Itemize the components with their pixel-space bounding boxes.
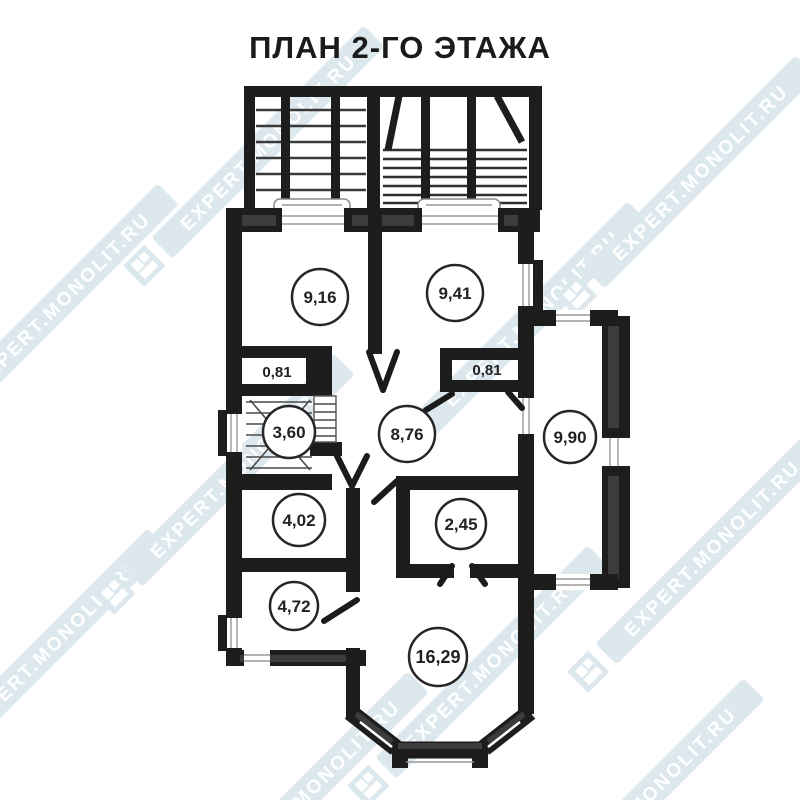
room-area-label: 2,45 <box>444 515 477 534</box>
window-opening <box>422 208 498 232</box>
room-area-label: 8,76 <box>390 425 423 444</box>
room-area-badge-living: 16,29 <box>409 628 467 686</box>
window-opening <box>556 574 590 590</box>
room-area-badge-top-left: 9,16 <box>292 269 348 325</box>
window-opening <box>218 410 242 456</box>
room-area-label: 4,72 <box>277 597 310 616</box>
room-area-label: 16,29 <box>415 647 460 667</box>
room-area-badge-stair: 3,60 <box>263 406 315 458</box>
room-area-label: 9,41 <box>438 284 471 303</box>
window-opening <box>282 208 344 232</box>
closet-area-label-left: 0,81 <box>262 364 291 381</box>
room-area-badge-mid-left: 4,02 <box>273 494 325 546</box>
window-opening <box>602 438 630 466</box>
room-area-label: 0,81 <box>262 364 291 381</box>
room-area-badge-loggia: 9,90 <box>544 411 596 463</box>
room-area-label: 4,02 <box>282 511 315 530</box>
room-area-badge-hall: 8,76 <box>379 406 435 462</box>
room-area-badge-top-right: 9,41 <box>427 265 483 321</box>
window-opening <box>218 615 242 651</box>
staircase-flight-2 <box>314 396 336 442</box>
room-area-label: 0,81 <box>472 362 501 379</box>
page-title: ПЛАН 2-ГО ЭТАЖА <box>249 30 551 65</box>
room-area-badge-mid-center: 2,45 <box>436 499 486 549</box>
floor-plan-page: EXPERT.MONOLIT.RU EXPERT.MONOLIT.RU EXPE… <box>0 0 800 800</box>
room-area-label: 3,60 <box>272 423 305 442</box>
room-area-badge-bottom-left: 4,72 <box>270 582 318 630</box>
window-opening <box>556 310 590 326</box>
closet-area-label-right: 0,81 <box>472 362 501 379</box>
window-opening <box>518 260 543 310</box>
room-area-label: 9,16 <box>303 288 336 307</box>
room-area-label: 9,90 <box>553 428 586 447</box>
bay-foot <box>392 756 408 768</box>
floor-plan-image: EXPERT.MONOLIT.RU EXPERT.MONOLIT.RU EXPE… <box>0 0 800 800</box>
window-opening <box>244 650 270 666</box>
bay-foot <box>472 756 488 768</box>
